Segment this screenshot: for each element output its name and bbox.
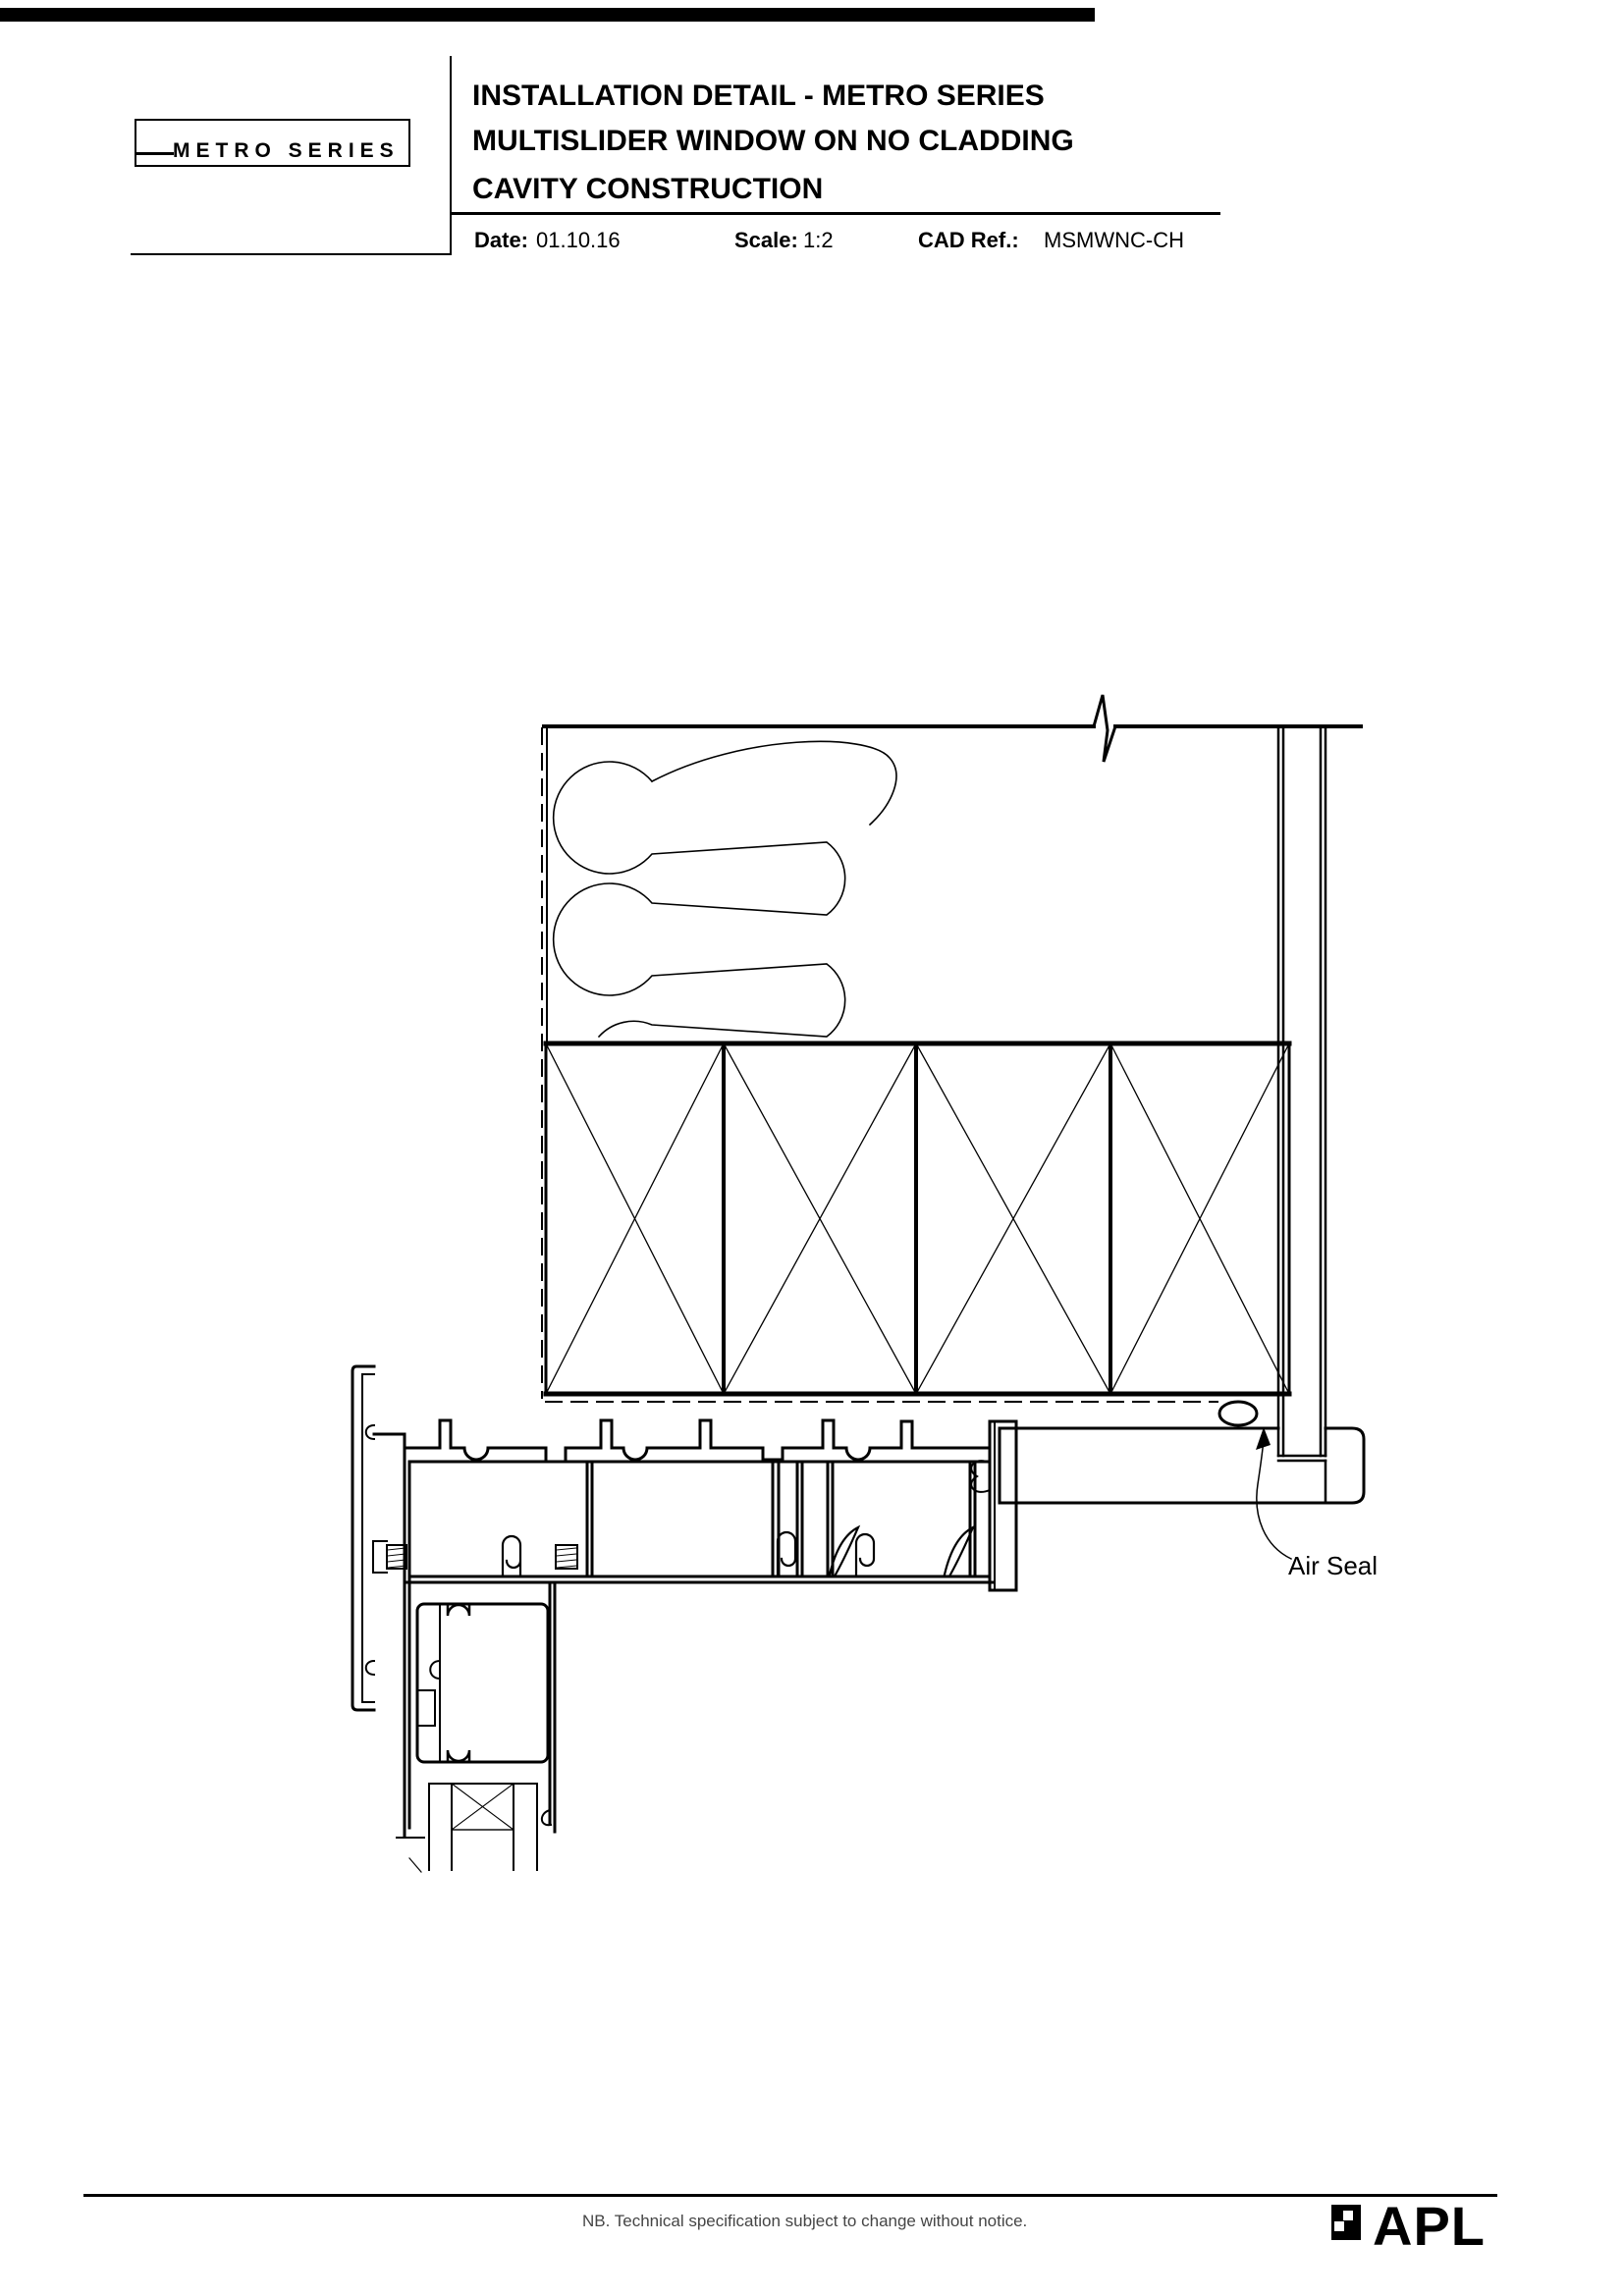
air-seal-arrowhead <box>1256 1427 1271 1450</box>
framing-xband <box>546 1043 1289 1394</box>
jamb-assembly <box>397 1582 555 1872</box>
apl-logo-text: APL <box>1373 2199 1486 2254</box>
footer-rule <box>83 2194 1497 2197</box>
air-seal-label: Air Seal <box>1288 1553 1378 1578</box>
apl-logo-mark <box>1331 2205 1361 2240</box>
glazing-spacer-xbox <box>452 1784 514 1830</box>
air-seal-leader <box>1256 1427 1291 1559</box>
interior-lining <box>1278 726 1325 1461</box>
head-flashing <box>1000 1428 1364 1503</box>
head-frame-assembly <box>373 1420 1016 1590</box>
footer-note: NB. Technical specification subject to c… <box>582 2213 1027 2229</box>
apl-logo-mark-notch-1 <box>1343 2211 1353 2220</box>
glazing-unit <box>409 1784 537 1872</box>
apl-logo: APL <box>1331 2199 1498 2244</box>
cad-detail-drawing <box>0 0 1623 2296</box>
panel-top-rail-profile <box>417 1604 548 1762</box>
building-wrap-dashed <box>542 728 1217 1402</box>
apl-logo-mark-notch-2 <box>1334 2221 1344 2231</box>
air-seal-ellipse <box>1219 1402 1257 1425</box>
insulation-batt <box>554 741 896 1037</box>
left-trim-channel <box>352 1366 374 1710</box>
break-symbol <box>1094 695 1115 762</box>
drawing-sheet: METRO SERIES INSTALLATION DETAIL - METRO… <box>0 0 1623 2296</box>
